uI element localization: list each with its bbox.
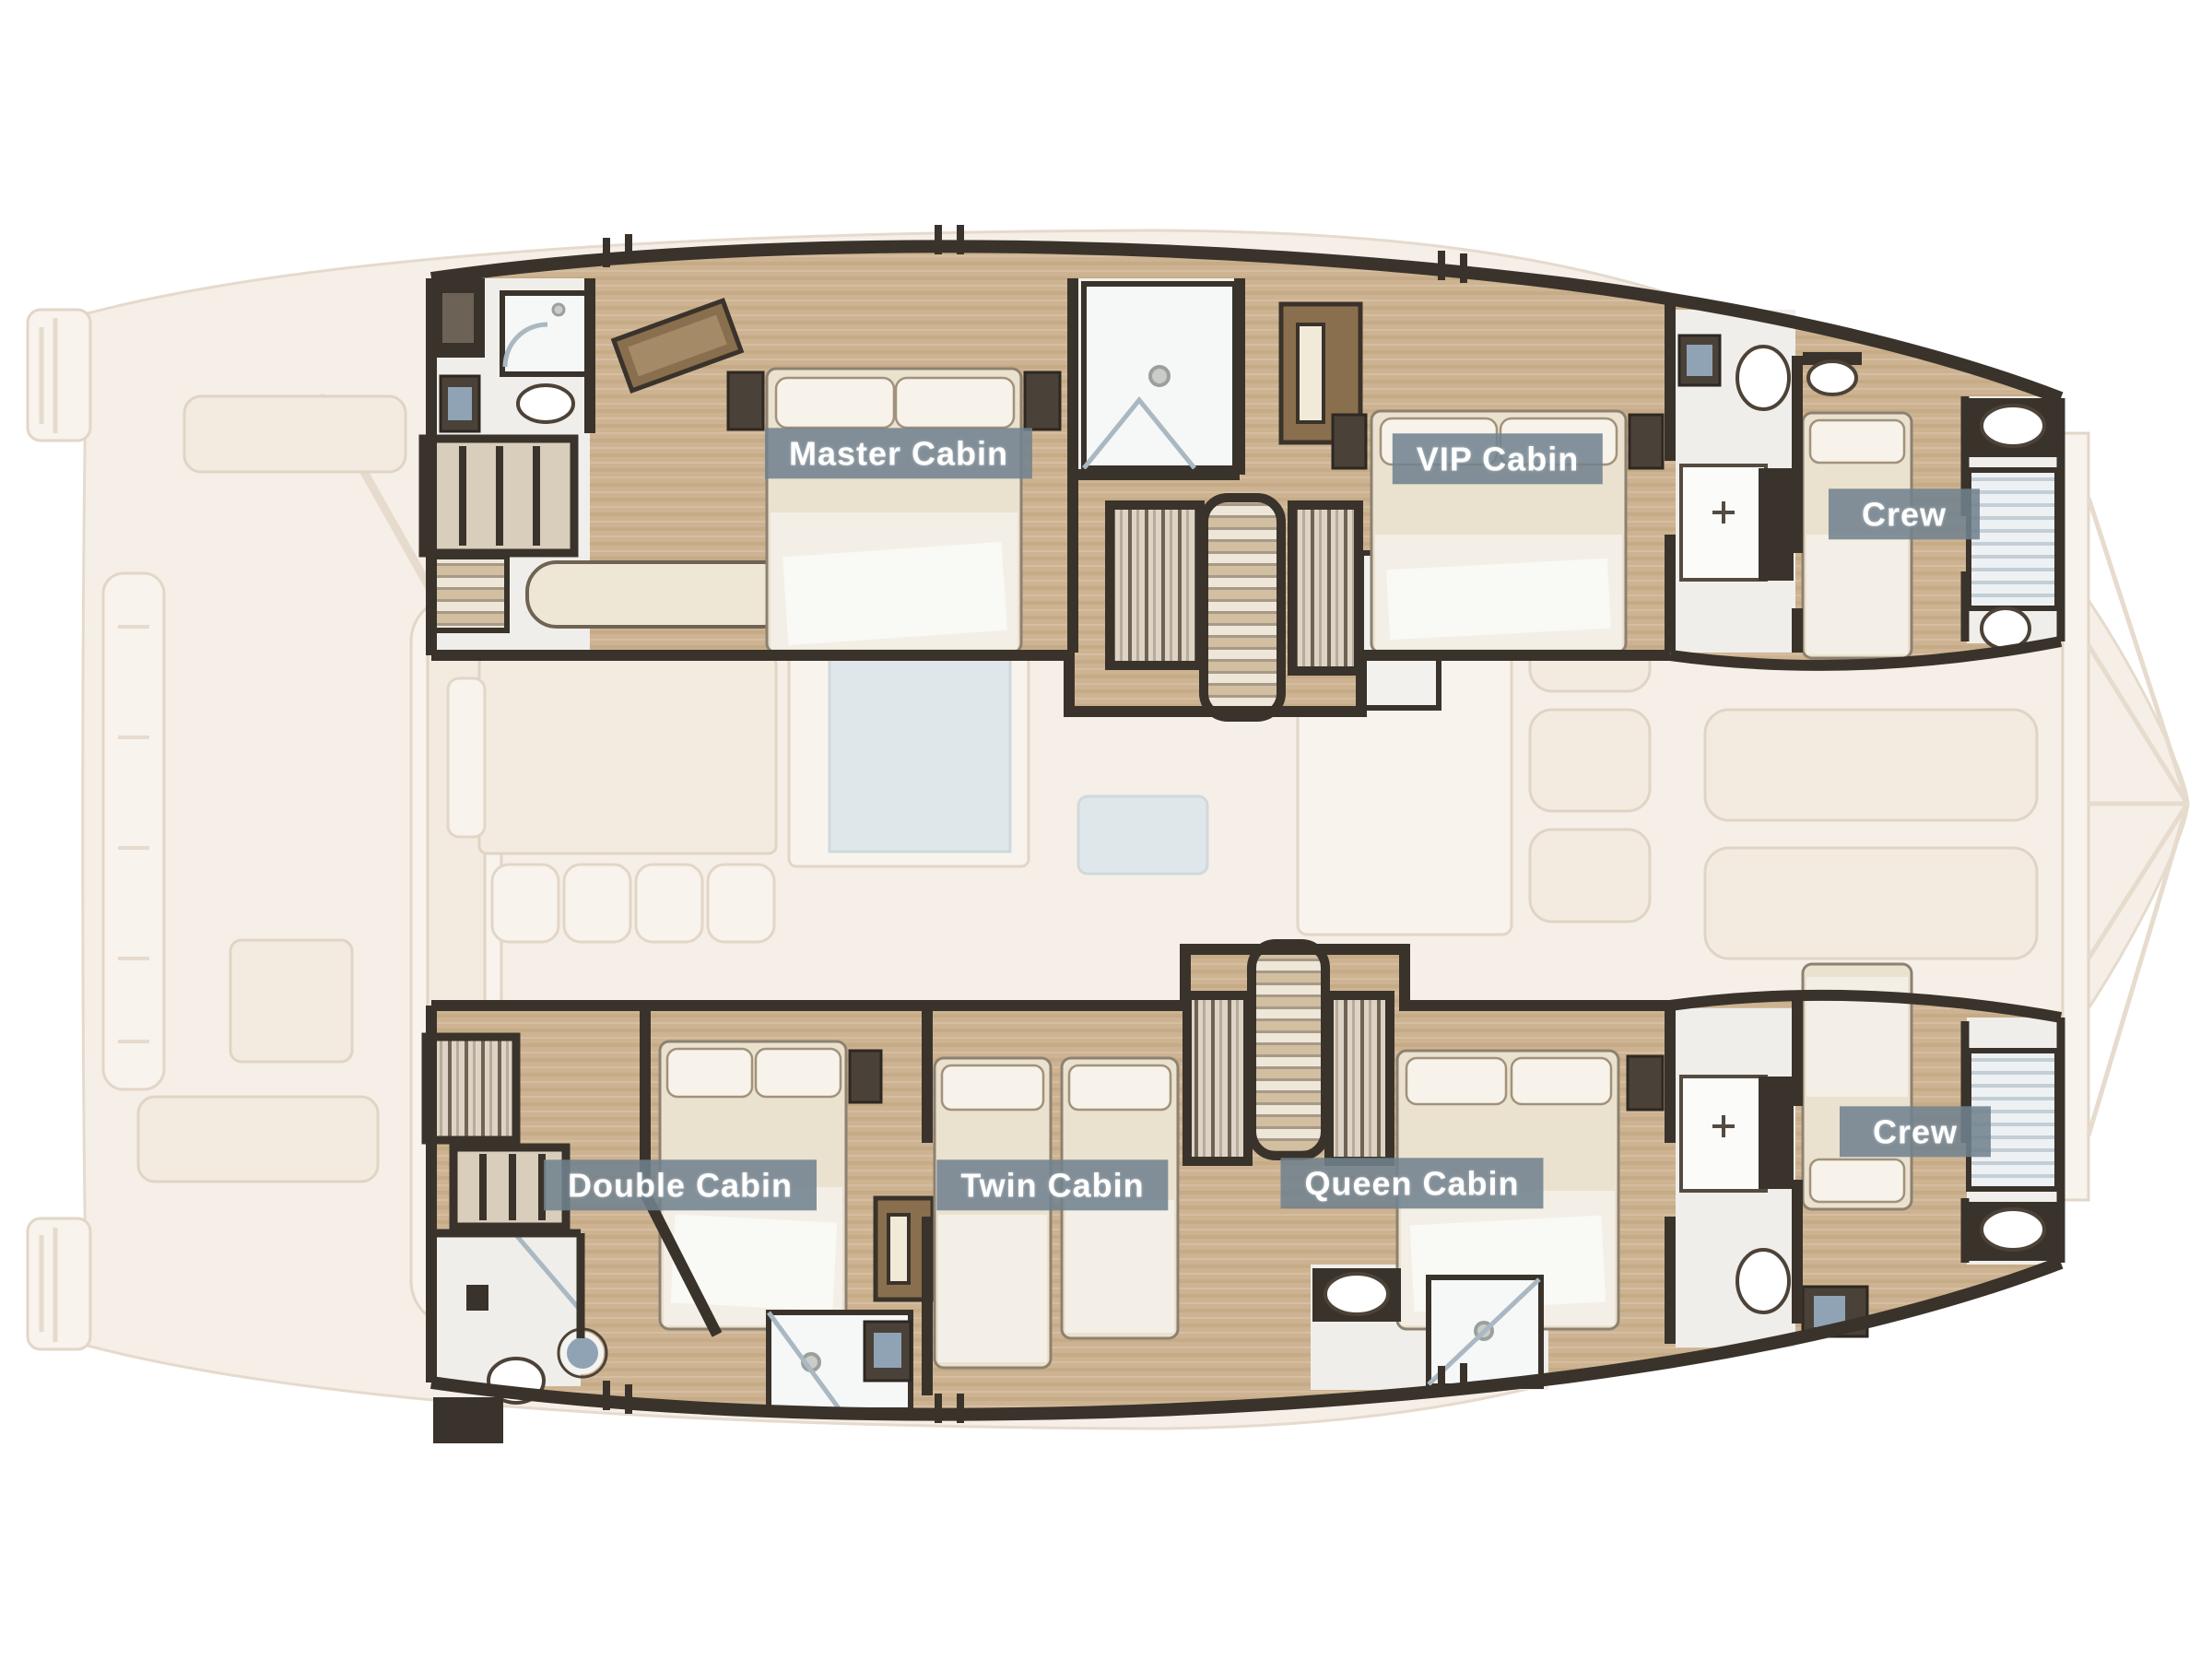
port-hull	[423, 225, 2061, 717]
swim-platform-starboard	[28, 1218, 90, 1349]
double-nightstand	[850, 1051, 881, 1102]
master-sofa	[527, 562, 793, 627]
vip-nightstand-right	[1630, 415, 1663, 468]
yacht-floorplan: Master Cabin VIP Cabin Crew Double Cabin…	[0, 0, 2212, 1659]
transom-bench	[103, 573, 164, 1089]
wardrobe-left	[1110, 505, 1200, 665]
vip-shower-room	[1084, 284, 1235, 468]
master-shower	[502, 293, 587, 374]
master-nightstand-right	[1025, 372, 1060, 429]
double-sink	[564, 1335, 601, 1371]
dining-chair-1	[492, 865, 559, 942]
dining-chair-2	[564, 865, 630, 942]
coffee-table	[1078, 796, 1207, 874]
dining-chair-3	[636, 865, 702, 942]
foredeck-pad-1	[1705, 710, 2037, 820]
twin-bed-1	[935, 1058, 1051, 1368]
label-master-cabin: Master Cabin	[765, 428, 1032, 478]
master-bed	[767, 369, 1021, 653]
double-slat-rack	[426, 1037, 516, 1140]
wardrobe-right-b	[1329, 995, 1390, 1161]
label-twin-cabin: Twin Cabin	[936, 1159, 1168, 1210]
corridor-toilet	[1737, 347, 1789, 409]
settee-pad-2	[1530, 710, 1650, 811]
shelf-tower-b	[1252, 944, 1325, 1156]
bow-crossbeam	[2063, 433, 2088, 1200]
label-crew-starboard: Crew	[1840, 1106, 1991, 1157]
crew-starboard-sink	[1982, 1209, 2044, 1250]
shelf-tower	[1204, 498, 1281, 717]
aft-table	[230, 940, 352, 1062]
queen-sink	[1325, 1274, 1388, 1314]
aft-seat-top	[184, 396, 406, 472]
label-crew-port: Crew	[1829, 488, 1980, 539]
vip-nightstand-left	[1333, 415, 1366, 468]
corridor-cabinet-b	[1759, 1077, 1794, 1189]
aft-seat-bottom	[138, 1097, 378, 1182]
wardrobe-right	[1292, 505, 1359, 671]
floorplan-svg	[0, 0, 2212, 1659]
nav-lounge-glass	[829, 647, 1010, 852]
crew-port-shower	[1969, 470, 2057, 608]
settee-pad-3	[1530, 829, 1650, 922]
dining-bench-left	[448, 678, 485, 837]
label-double-cabin: Double Cabin	[544, 1159, 817, 1210]
dining-chair-4	[708, 865, 774, 942]
master-nightstand-left	[728, 372, 763, 429]
wardrobe-left-b	[1187, 995, 1248, 1161]
label-queen-cabin: Queen Cabin	[1280, 1158, 1543, 1208]
master-sink	[518, 385, 573, 422]
dining-table	[479, 656, 776, 853]
master-linen-shelf	[431, 557, 507, 630]
double-bath-cabinet	[433, 1397, 503, 1443]
crew-port-sink	[1982, 406, 2044, 446]
twin-shower-room	[769, 1312, 911, 1410]
crew-port-sink-small	[1808, 361, 1856, 394]
foredeck-pad-2	[1705, 848, 2037, 959]
label-vip-cabin: VIP Cabin	[1393, 433, 1603, 484]
swim-platform-port	[28, 310, 90, 441]
queen-nightstand	[1628, 1056, 1663, 1110]
corridor-cabinet	[1759, 468, 1794, 581]
corridor-toilet-b	[1737, 1250, 1789, 1312]
